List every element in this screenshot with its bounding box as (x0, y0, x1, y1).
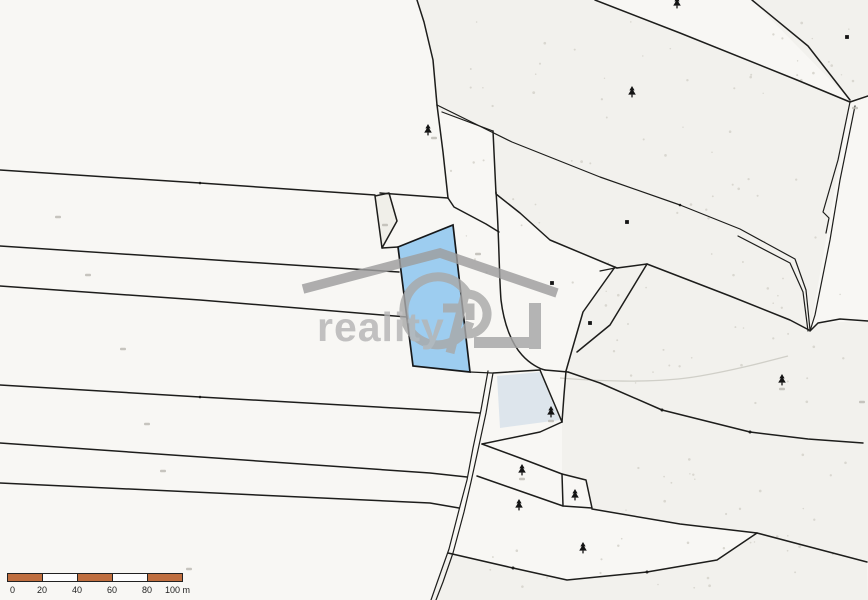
speckle-dot (812, 38, 813, 39)
speckle-dot (482, 87, 484, 89)
speckle-dot (605, 291, 606, 292)
speckle-dot (848, 28, 850, 30)
speckle-dot (692, 473, 694, 475)
speckle-dot (652, 371, 654, 373)
speckle-dot (733, 87, 735, 89)
speckle-dot (470, 68, 472, 70)
speckle-dot (749, 76, 752, 79)
parcel-label-mark (548, 420, 554, 422)
speckle-dot (787, 535, 789, 537)
speckle-dot (687, 542, 690, 545)
speckle-dot (613, 350, 615, 352)
parcel-label-mark (852, 107, 858, 109)
speckle-dot (787, 333, 789, 335)
speckle-dot (521, 585, 524, 588)
speckle-dot (532, 91, 535, 94)
cadastral-map-viewport: reality 0 20 40 60 80 100 m (0, 0, 868, 600)
scale-label-100m: 100 m (165, 585, 190, 595)
speckle-dot (521, 224, 523, 226)
speckle-dot (483, 159, 485, 161)
speckle-dot (723, 547, 725, 549)
map-canvas: reality (0, 0, 868, 600)
speckle-dot (491, 105, 493, 107)
speckle-dot (844, 462, 847, 465)
speckle-dot (668, 365, 670, 367)
speckle-dot (743, 327, 745, 329)
parcel-label-mark (186, 568, 192, 570)
speckle-dot (725, 513, 727, 515)
speckle-dot (782, 278, 784, 280)
scale-label-20: 20 (37, 585, 47, 595)
speckle-dot (814, 236, 816, 238)
scale-label-60: 60 (107, 585, 117, 595)
speckle-dot (572, 281, 574, 283)
speckle-dot (803, 508, 804, 509)
speckle-dot (617, 544, 619, 546)
speckle-dot (805, 400, 808, 403)
speckle-dot (690, 203, 693, 206)
speckle-dot (605, 304, 608, 307)
speckle-dot (643, 138, 645, 140)
speckle-dot (645, 287, 647, 289)
scale-bar: 0 20 40 60 80 100 m (7, 573, 197, 599)
speckle-dot (691, 357, 693, 359)
parcel-label-mark (382, 224, 388, 226)
speckle-dot (796, 74, 798, 76)
speckle-dot (711, 151, 713, 153)
speckle-dot (707, 217, 709, 219)
speckle-dot (800, 22, 803, 25)
building-dot (625, 220, 629, 224)
speckle-dot (812, 72, 815, 75)
speckle-dot (787, 550, 789, 552)
speckle-dot (852, 80, 855, 83)
parcel-label-mark (160, 470, 166, 472)
parcel-label-mark (120, 348, 126, 350)
parcel-label-mark (55, 216, 61, 218)
speckle-dot (657, 584, 659, 586)
speckle-dot (708, 584, 711, 587)
speckle-dot (600, 558, 602, 560)
speckle-dot (512, 198, 514, 200)
speckle-dot (806, 377, 808, 379)
speckle-dot (841, 74, 842, 75)
speckle-dot (787, 380, 789, 382)
speckle-dot (682, 126, 683, 127)
speckle-dot (604, 78, 605, 79)
tree-icon (579, 542, 587, 553)
speckle-dot (747, 178, 749, 180)
tree-icon (515, 499, 523, 510)
scale-bar-segment (147, 574, 182, 581)
speckle-dot (678, 365, 680, 367)
speckle-dot (739, 508, 741, 510)
speckle-dot (732, 274, 735, 277)
speckle-dot (642, 55, 643, 56)
parcel-label-mark (431, 137, 437, 139)
speckle-dot (450, 170, 452, 172)
speckle-dot (476, 21, 478, 23)
speckle-dot (754, 541, 755, 542)
scale-bar-segment (112, 574, 147, 581)
speckle-dot (812, 345, 815, 348)
speckle-dot (742, 261, 744, 263)
speckle-dot (688, 458, 691, 461)
speckle-dot (828, 61, 830, 63)
speckle-dot (516, 549, 519, 552)
speckle-dot (798, 545, 801, 548)
speckle-dot (670, 482, 672, 484)
speckle-dot (601, 98, 603, 100)
speckle-dot (781, 37, 783, 39)
speckle-dot (757, 195, 759, 197)
speckle-dot (839, 294, 841, 296)
speckle-dot (546, 577, 548, 579)
speckle-dot (693, 587, 695, 589)
speckle-dot (670, 48, 672, 50)
speckle-dot (705, 209, 707, 211)
speckle-dot (676, 212, 678, 214)
building-dot (588, 321, 592, 325)
speckle-dot (772, 337, 774, 339)
speckle-dot (689, 473, 690, 474)
speckle-dot (842, 357, 844, 359)
building-dot (550, 281, 554, 285)
speckle-dot (630, 21, 632, 23)
parcel-label-mark (519, 478, 525, 480)
speckle-dot (737, 187, 740, 190)
speckle-dot (686, 79, 688, 81)
speckle-dot (729, 130, 732, 133)
tree-icon (571, 489, 579, 500)
speckle-dot (580, 160, 583, 163)
speckle-dot (830, 64, 833, 67)
speckle-dot (625, 509, 627, 511)
speckle-dot (734, 326, 736, 328)
speckle-dot (492, 556, 494, 558)
speckle-dot (466, 235, 467, 236)
tree-icon (424, 124, 432, 135)
speckle-dot (732, 184, 734, 186)
speckle-dot (627, 323, 629, 325)
speckle-dot (571, 160, 573, 162)
speckle-dot (762, 93, 763, 94)
scale-label-80: 80 (142, 585, 152, 595)
speckle-dot (662, 349, 664, 351)
speckle-dot (539, 63, 541, 65)
tree-icon (518, 464, 526, 475)
speckle-dot (772, 33, 774, 35)
speckle-dot (538, 222, 540, 224)
scale-bar-segment (77, 574, 112, 581)
speckle-dot (599, 572, 601, 574)
speckle-dot (711, 253, 713, 255)
speckle-dot (574, 49, 576, 51)
speckle-dot (489, 569, 491, 571)
scale-bar-track (7, 573, 183, 582)
parcel-fill-tinted-pentagon (497, 372, 560, 428)
scale-label-0: 0 (10, 585, 15, 595)
speckle-dot (795, 178, 797, 180)
speckle-dot (630, 374, 632, 376)
speckle-dot (754, 402, 756, 404)
speckle-dot (637, 467, 639, 469)
speckle-dot (589, 162, 591, 164)
speckle-dot (781, 307, 783, 309)
parcel-label-mark (144, 423, 150, 425)
speckle-dot (472, 161, 474, 163)
speckle-dot (797, 60, 798, 61)
speckle-dot (470, 87, 472, 89)
parcel-label-mark (85, 274, 91, 276)
speckle-dot (767, 287, 770, 290)
speckle-dot (535, 204, 537, 206)
speckle-dot (707, 577, 710, 580)
speckle-dot (772, 302, 774, 304)
speckle-dot (616, 339, 618, 341)
speckle-dot (617, 294, 620, 297)
scale-label-40: 40 (72, 585, 82, 595)
speckle-dot (750, 542, 752, 544)
speckle-dot (759, 490, 762, 493)
speckle-dot (621, 538, 623, 540)
speckle-dot (535, 73, 537, 75)
scale-bar-segment (8, 574, 42, 581)
speckle-dot (750, 74, 752, 76)
speckle-dot (635, 382, 637, 384)
speckle-dot (830, 474, 832, 476)
parcel-label-mark (859, 401, 865, 403)
parcel-label-mark (779, 388, 785, 390)
speckle-dot (813, 519, 815, 521)
speckle-dot (663, 500, 666, 503)
speckle-dot (740, 364, 743, 367)
tree-icon (673, 0, 681, 8)
speckle-dot (694, 479, 695, 480)
speckle-dot (664, 154, 667, 157)
scale-bar-segment (42, 574, 77, 581)
watermark-text: reality (317, 304, 445, 350)
speckle-dot (712, 195, 714, 197)
speckle-dot (663, 476, 665, 478)
building-dot (845, 35, 849, 39)
speckle-dot (794, 571, 796, 573)
speckle-dot (802, 454, 805, 457)
speckle-dot (606, 117, 608, 119)
speckle-dot (543, 42, 546, 45)
speckle-dot (777, 295, 779, 297)
parcel-label-mark (475, 253, 481, 255)
